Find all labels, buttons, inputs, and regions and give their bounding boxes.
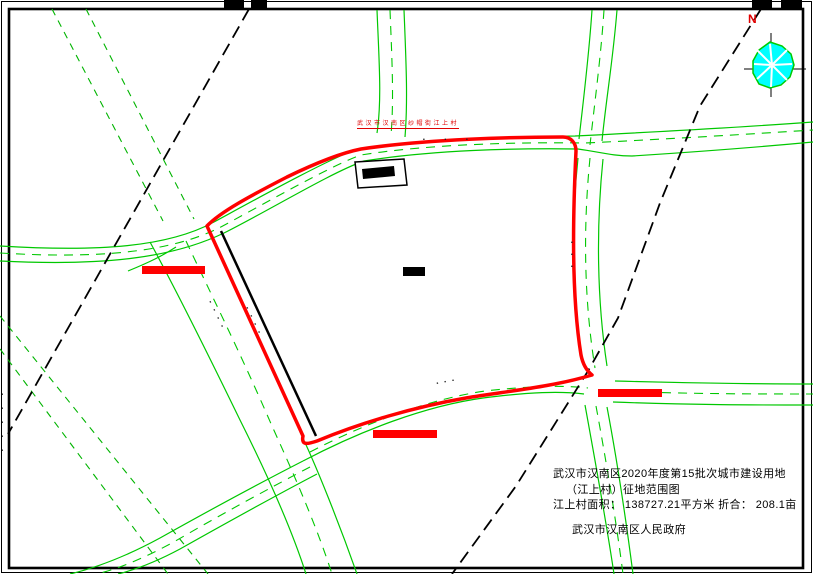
title-line-3: 江上村面积： 138727.21平方米 折合： 208.1亩 (553, 496, 797, 512)
edge-label-left: ▪▪▪▪▪ (0, 392, 5, 462)
title-line-1: 武汉市汉南区2020年度第15批次城市建设用地 (553, 465, 786, 481)
map-canvas: N 武汉市汉南区纱帽街江上村 ▪ ▪ ▪ ▪▪▪ ▪▪▪▪ ▪▪▪▪ ▪▪▪ ▪… (0, 0, 813, 574)
building-footprint (355, 159, 407, 188)
road-network (0, 9, 813, 574)
red-marker-left (142, 266, 205, 274)
red-marker-right (598, 389, 662, 397)
north-label: N (748, 12, 757, 26)
village-label: 武汉市汉南区纱帽街江上村 (357, 118, 459, 129)
center-marker-bar (403, 267, 425, 276)
survey-map-drawing (0, 0, 813, 574)
red-marker-bottom (373, 430, 437, 438)
title-line-4: 武汉市汉南区人民政府 (572, 521, 686, 537)
road-label-top: ▪ ▪ ▪ (423, 137, 477, 143)
parcel-edge-line (221, 231, 316, 436)
road-label-right: ▪▪▪ (569, 240, 575, 276)
north-tree-symbol (744, 33, 806, 97)
title-line-2: （江上村）征地范围图 (566, 481, 680, 497)
